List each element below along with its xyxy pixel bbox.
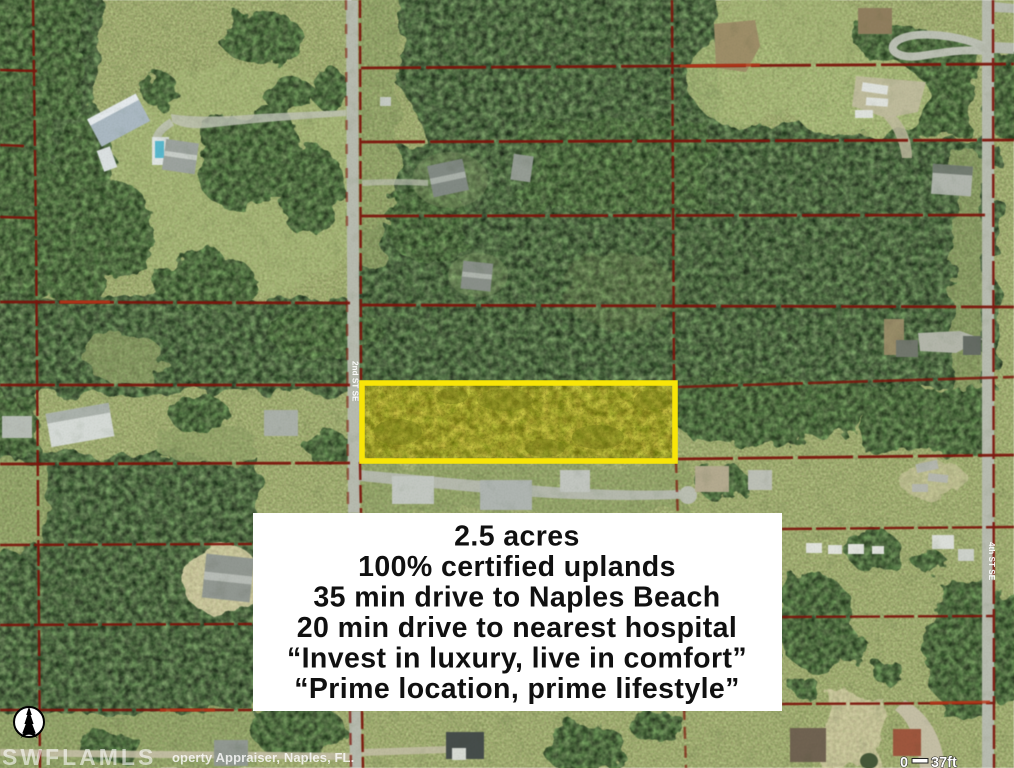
svg-text:4th ST SE: 4th ST SE xyxy=(987,542,996,581)
svg-text:2nd ST SE: 2nd ST SE xyxy=(351,361,360,402)
svg-text:0: 0 xyxy=(900,755,908,768)
svg-text:37ft: 37ft xyxy=(931,755,957,768)
svg-text:2.5 acres: 2.5 acres xyxy=(454,521,580,553)
svg-text:35 min drive to Naples Beach: 35 min drive to Naples Beach xyxy=(313,582,720,614)
svg-text:100% certified uplands: 100% certified uplands xyxy=(358,551,676,583)
svg-text:“Invest in luxury, live in com: “Invest in luxury, live in comfort” xyxy=(287,643,747,675)
svg-text:20 min drive to nearest hospit: 20 min drive to nearest hospital xyxy=(297,612,737,644)
svg-text:operty Appraiser, Naples, FL.: operty Appraiser, Naples, FL. xyxy=(172,750,354,765)
svg-text:“Prime location, prime lifesty: “Prime location, prime lifestyle” xyxy=(294,673,740,705)
svg-text:SWFLAMLS: SWFLAMLS xyxy=(2,744,156,768)
